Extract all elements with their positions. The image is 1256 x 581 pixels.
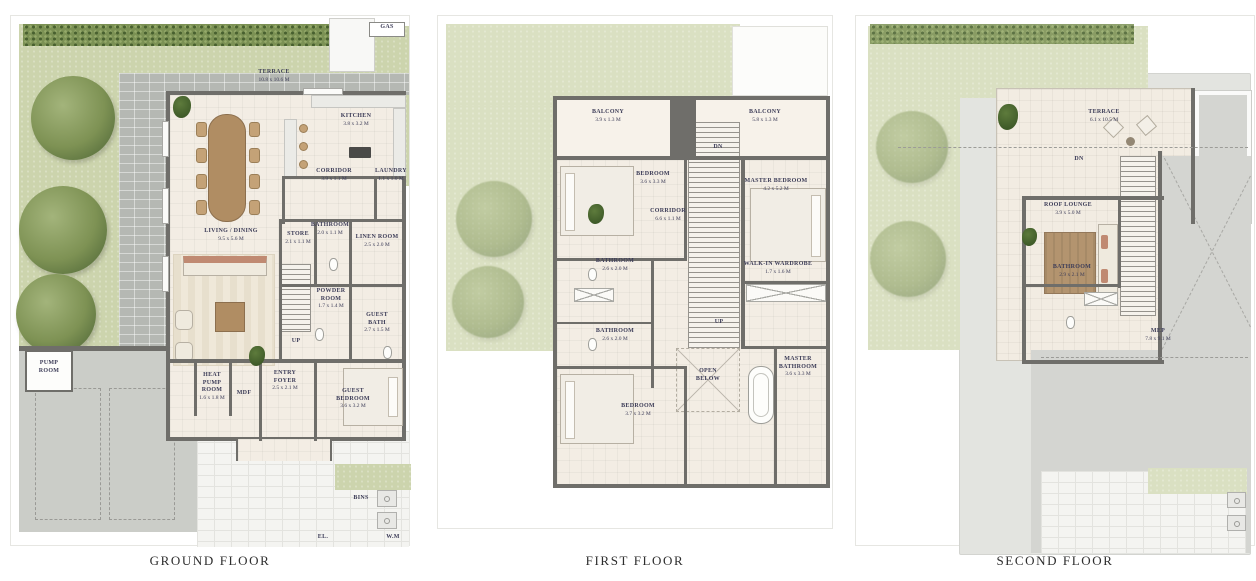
powder-room-label: POWDER ROOM1.7 x 1.4 M <box>313 288 349 310</box>
window <box>162 188 169 224</box>
wall <box>553 322 653 324</box>
dining-chair <box>249 174 260 189</box>
bar-stool <box>299 142 308 151</box>
wall <box>1022 284 1120 287</box>
bathroom-label: BATHROOM2.0 x 1.1 M <box>311 222 349 236</box>
staircase <box>281 264 311 332</box>
dining-chair <box>249 200 260 215</box>
second-floor-panel: TERRACE6.1 x 10.5 M DN ROOF LOUNGE3.9 x … <box>855 15 1255 546</box>
wall <box>314 361 317 441</box>
bathroom-lower-label: BATHROOM2.6 x 2.0 M <box>596 328 634 342</box>
wall <box>1118 200 1121 288</box>
hedge <box>870 24 1134 44</box>
first-floor-title: FIRST FLOOR <box>437 553 833 569</box>
cabinet-unit <box>1084 292 1118 306</box>
cabinet-unit <box>574 288 614 302</box>
tree <box>452 266 524 338</box>
mdf-label: MDF <box>237 390 252 398</box>
master-bathroom-label: MASTER BATHROOM3.6 x 3.3 M <box>776 356 820 378</box>
tree <box>16 274 96 354</box>
kitchen-counter <box>311 95 406 108</box>
kitchen-island <box>284 119 297 177</box>
toilet <box>329 258 338 271</box>
guest-bath-label: GUEST BATH2.7 x 1.5 M <box>359 312 395 334</box>
bin <box>377 512 397 529</box>
wall <box>279 284 406 287</box>
wall <box>684 366 687 488</box>
pillow <box>565 381 575 439</box>
mep-label: MEP7.8 x 9.1 M <box>1145 328 1171 342</box>
wall <box>1022 196 1026 364</box>
floorplan-sheet: TERRACE10.8 x 10.6 M KITCHEN3.8 x 3.2 M … <box>0 0 1256 581</box>
bin <box>1227 492 1246 508</box>
entry-foyer-label: ENTRY FOYER2.5 x 2.1 M <box>268 370 302 392</box>
wall <box>259 361 262 441</box>
toilet <box>383 346 392 359</box>
corridor-label: CORRIDOR6.6 x 1.1 M <box>650 208 686 222</box>
stove <box>349 147 371 158</box>
toilet <box>1066 316 1075 329</box>
wall <box>670 96 696 158</box>
garden-wall <box>19 346 167 351</box>
wall <box>166 359 406 363</box>
master-bed <box>750 188 826 262</box>
pump-room-label: PUMP ROOM <box>33 360 65 375</box>
guest-bedroom-label: GUEST BEDROOM3.6 x 3.2 M <box>330 388 376 410</box>
second-floor-title: SECOND FLOOR <box>855 553 1255 569</box>
walk-in-wardrobe-label: WALK-IN WARDROBE1.7 x 1.6 M <box>744 261 813 275</box>
wm-label: W.M <box>386 534 400 542</box>
terrace-label: TERRACE6.1 x 10.5 M <box>1088 109 1119 123</box>
open-below-label: OPEN BELOW <box>693 368 723 383</box>
roof-lounge-label: ROOF LOUNGE3.9 x 5.0 M <box>1044 202 1092 216</box>
bedroom3-label: BEDROOM3.7 x 3.2 M <box>621 403 655 417</box>
dining-chair <box>196 174 207 189</box>
kitchen-label: KITCHEN3.8 x 3.2 M <box>341 113 371 127</box>
up-label: UP <box>715 319 724 327</box>
garden-patch <box>335 464 411 490</box>
hedge <box>23 24 353 46</box>
pillow <box>388 377 398 417</box>
bar-stool <box>299 160 308 169</box>
tree <box>870 221 946 297</box>
ground-floor-title: GROUND FLOOR <box>10 553 410 569</box>
dining-chair <box>196 148 207 163</box>
ground-floor-panel: TERRACE10.8 x 10.6 M KITCHEN3.8 x 3.2 M … <box>10 15 410 546</box>
wall <box>553 366 687 369</box>
dining-chair <box>196 200 207 215</box>
staircase <box>1120 156 1156 316</box>
dn-label: DN <box>713 144 722 152</box>
bin <box>377 490 397 507</box>
bin <box>1227 515 1246 531</box>
roof-overhang-line <box>898 147 1248 148</box>
wall <box>1022 196 1164 200</box>
terrace-label: TERRACE10.8 x 10.6 M <box>258 69 289 83</box>
wall <box>1022 360 1164 364</box>
roof-diagonals <box>1162 156 1251 350</box>
wall <box>349 221 352 286</box>
garden-patch <box>1148 468 1247 494</box>
window <box>303 88 343 95</box>
wall <box>741 346 830 349</box>
dining-table <box>208 114 246 222</box>
side-table <box>1126 137 1135 146</box>
wardrobe-unit <box>746 284 826 302</box>
pillow <box>811 195 821 257</box>
cushion <box>1101 235 1108 249</box>
wall <box>374 176 377 221</box>
dining-chair <box>196 122 207 137</box>
parking-stall <box>35 388 101 520</box>
sofa <box>183 256 267 276</box>
wall <box>229 361 232 416</box>
heat-pump-room-label: HEAT PUMP ROOM1.6 x 1.8 M <box>195 372 229 401</box>
armchair <box>175 310 193 330</box>
roof-outline <box>732 26 828 96</box>
bar-stool <box>299 124 308 133</box>
first-floor-panel: BALCONY3.9 x 1.3 M BALCONY5.8 x 1.3 M BE… <box>437 15 833 529</box>
entry-porch <box>236 439 332 461</box>
wall <box>741 281 830 284</box>
wall <box>1191 88 1195 224</box>
corridor-label: CORRIDOR3.9 x 1.1 M <box>316 168 352 182</box>
laundry-label: LAUNDRY1.1 x 1.0 M <box>374 168 408 182</box>
wall <box>279 221 282 363</box>
bedroom2-label: BEDROOM3.6 x 3.3 M <box>636 171 670 185</box>
balcony-right-label: BALCONY5.8 x 1.3 M <box>749 109 781 123</box>
dn-label: DN <box>1074 156 1083 164</box>
store-label: STORE2.1 x 1.1 M <box>285 231 311 245</box>
dining-chair <box>249 122 260 137</box>
coffee-table <box>215 302 245 332</box>
garden-grass <box>446 24 740 106</box>
linen-room-label: LINEN ROOM2.5 x 2.0 M <box>356 234 399 248</box>
gas-label: GAS <box>380 24 393 32</box>
master-bedroom-label: MASTER BEDROOM4.2 x 5.2 M <box>744 178 807 192</box>
window <box>162 256 169 292</box>
window <box>162 121 169 157</box>
tree <box>31 76 115 160</box>
balcony-left-label: BALCONY3.9 x 1.3 M <box>592 109 624 123</box>
bathtub <box>748 366 774 424</box>
cushion <box>1101 269 1108 283</box>
roof-overhang-line <box>1041 357 1248 358</box>
lounge-sofa <box>1098 224 1118 302</box>
toilet <box>315 328 324 341</box>
tree <box>456 181 532 257</box>
el-label: EL. <box>318 534 328 542</box>
pillow <box>565 173 575 231</box>
bins-label: BINS <box>353 495 368 503</box>
bathroom-label: BATHROOM2.9 x 2.1 M <box>1053 264 1091 278</box>
bed <box>560 166 634 236</box>
tree <box>19 186 107 274</box>
up-label: UP <box>292 338 301 346</box>
bathroom-upper-label: BATHROOM2.6 x 2.0 M <box>596 258 634 272</box>
wall <box>282 176 285 224</box>
dining-chair <box>249 148 260 163</box>
wall <box>349 286 352 363</box>
living-dining-label: LIVING / DINING9.5 x 5.6 M <box>204 228 258 242</box>
